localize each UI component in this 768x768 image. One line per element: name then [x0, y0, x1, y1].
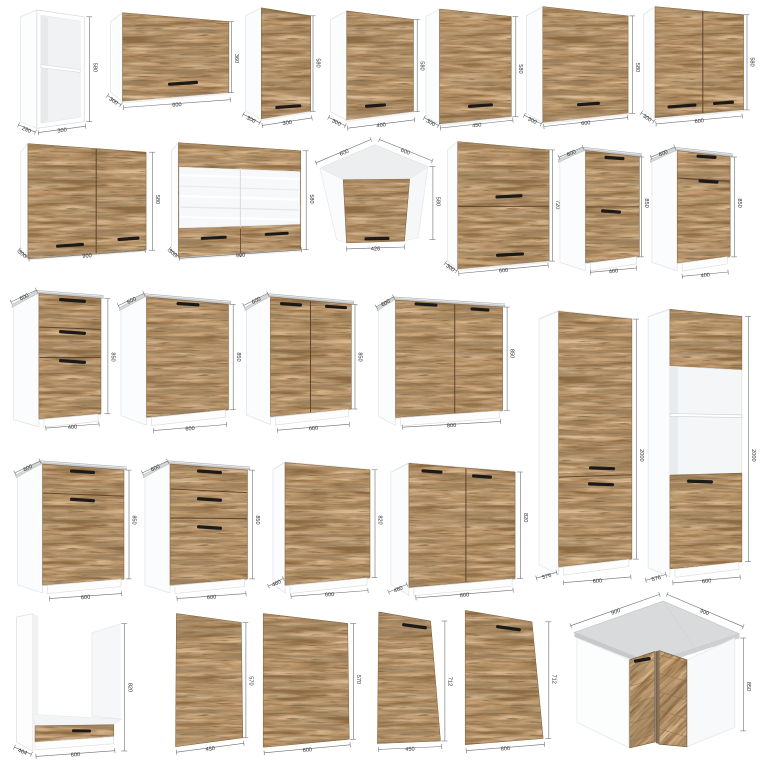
svg-text:850: 850: [235, 352, 241, 361]
svg-text:600: 600: [593, 578, 603, 585]
svg-text:450: 450: [405, 747, 415, 753]
svg-text:400: 400: [609, 268, 619, 275]
svg-text:580: 580: [517, 64, 523, 73]
svg-text:800: 800: [460, 592, 470, 599]
svg-text:600: 600: [185, 426, 195, 433]
svg-text:570: 570: [248, 676, 254, 685]
svg-text:720: 720: [554, 200, 560, 209]
svg-text:712: 712: [550, 675, 556, 684]
svg-text:300: 300: [57, 127, 67, 134]
svg-text:400: 400: [68, 424, 78, 431]
svg-text:400: 400: [700, 272, 710, 279]
svg-text:580: 580: [91, 63, 97, 72]
svg-text:800: 800: [447, 423, 457, 430]
svg-text:400: 400: [376, 122, 386, 129]
svg-text:850: 850: [131, 515, 137, 524]
svg-text:600: 600: [499, 268, 509, 275]
svg-text:850: 850: [254, 515, 260, 524]
svg-text:2000: 2000: [750, 449, 756, 461]
svg-text:850: 850: [643, 198, 649, 207]
svg-text:580: 580: [435, 197, 441, 206]
svg-text:600: 600: [501, 746, 511, 753]
svg-text:600: 600: [309, 426, 319, 433]
svg-text:580: 580: [634, 63, 640, 72]
svg-text:712: 712: [447, 677, 453, 686]
svg-text:600: 600: [581, 120, 591, 127]
svg-text:600: 600: [325, 592, 335, 599]
svg-text:600: 600: [702, 578, 712, 585]
svg-text:580: 580: [315, 58, 321, 67]
svg-text:580: 580: [308, 194, 314, 203]
svg-text:850: 850: [509, 349, 515, 358]
svg-text:900: 900: [82, 253, 92, 260]
svg-text:850: 850: [745, 682, 751, 691]
svg-text:570: 570: [355, 675, 361, 684]
svg-text:600: 600: [172, 102, 182, 109]
svg-text:900: 900: [236, 253, 246, 260]
svg-text:600: 600: [71, 752, 81, 759]
svg-text:600: 600: [694, 118, 704, 125]
svg-text:450: 450: [205, 746, 215, 753]
svg-text:600: 600: [81, 595, 91, 602]
svg-text:450: 450: [472, 122, 482, 129]
svg-text:820: 820: [522, 513, 528, 522]
svg-text:580: 580: [154, 195, 160, 204]
svg-text:426: 426: [371, 246, 381, 252]
svg-text:850: 850: [357, 352, 363, 361]
svg-text:850: 850: [736, 198, 742, 207]
svg-text:820: 820: [126, 683, 132, 692]
svg-text:600: 600: [302, 747, 312, 754]
svg-text:580: 580: [748, 57, 754, 66]
svg-text:600: 600: [207, 595, 217, 602]
svg-text:360: 360: [233, 54, 239, 63]
svg-text:850: 850: [110, 352, 116, 361]
svg-text:820: 820: [377, 515, 383, 524]
svg-text:580: 580: [419, 61, 425, 70]
svg-text:2000: 2000: [638, 449, 644, 461]
